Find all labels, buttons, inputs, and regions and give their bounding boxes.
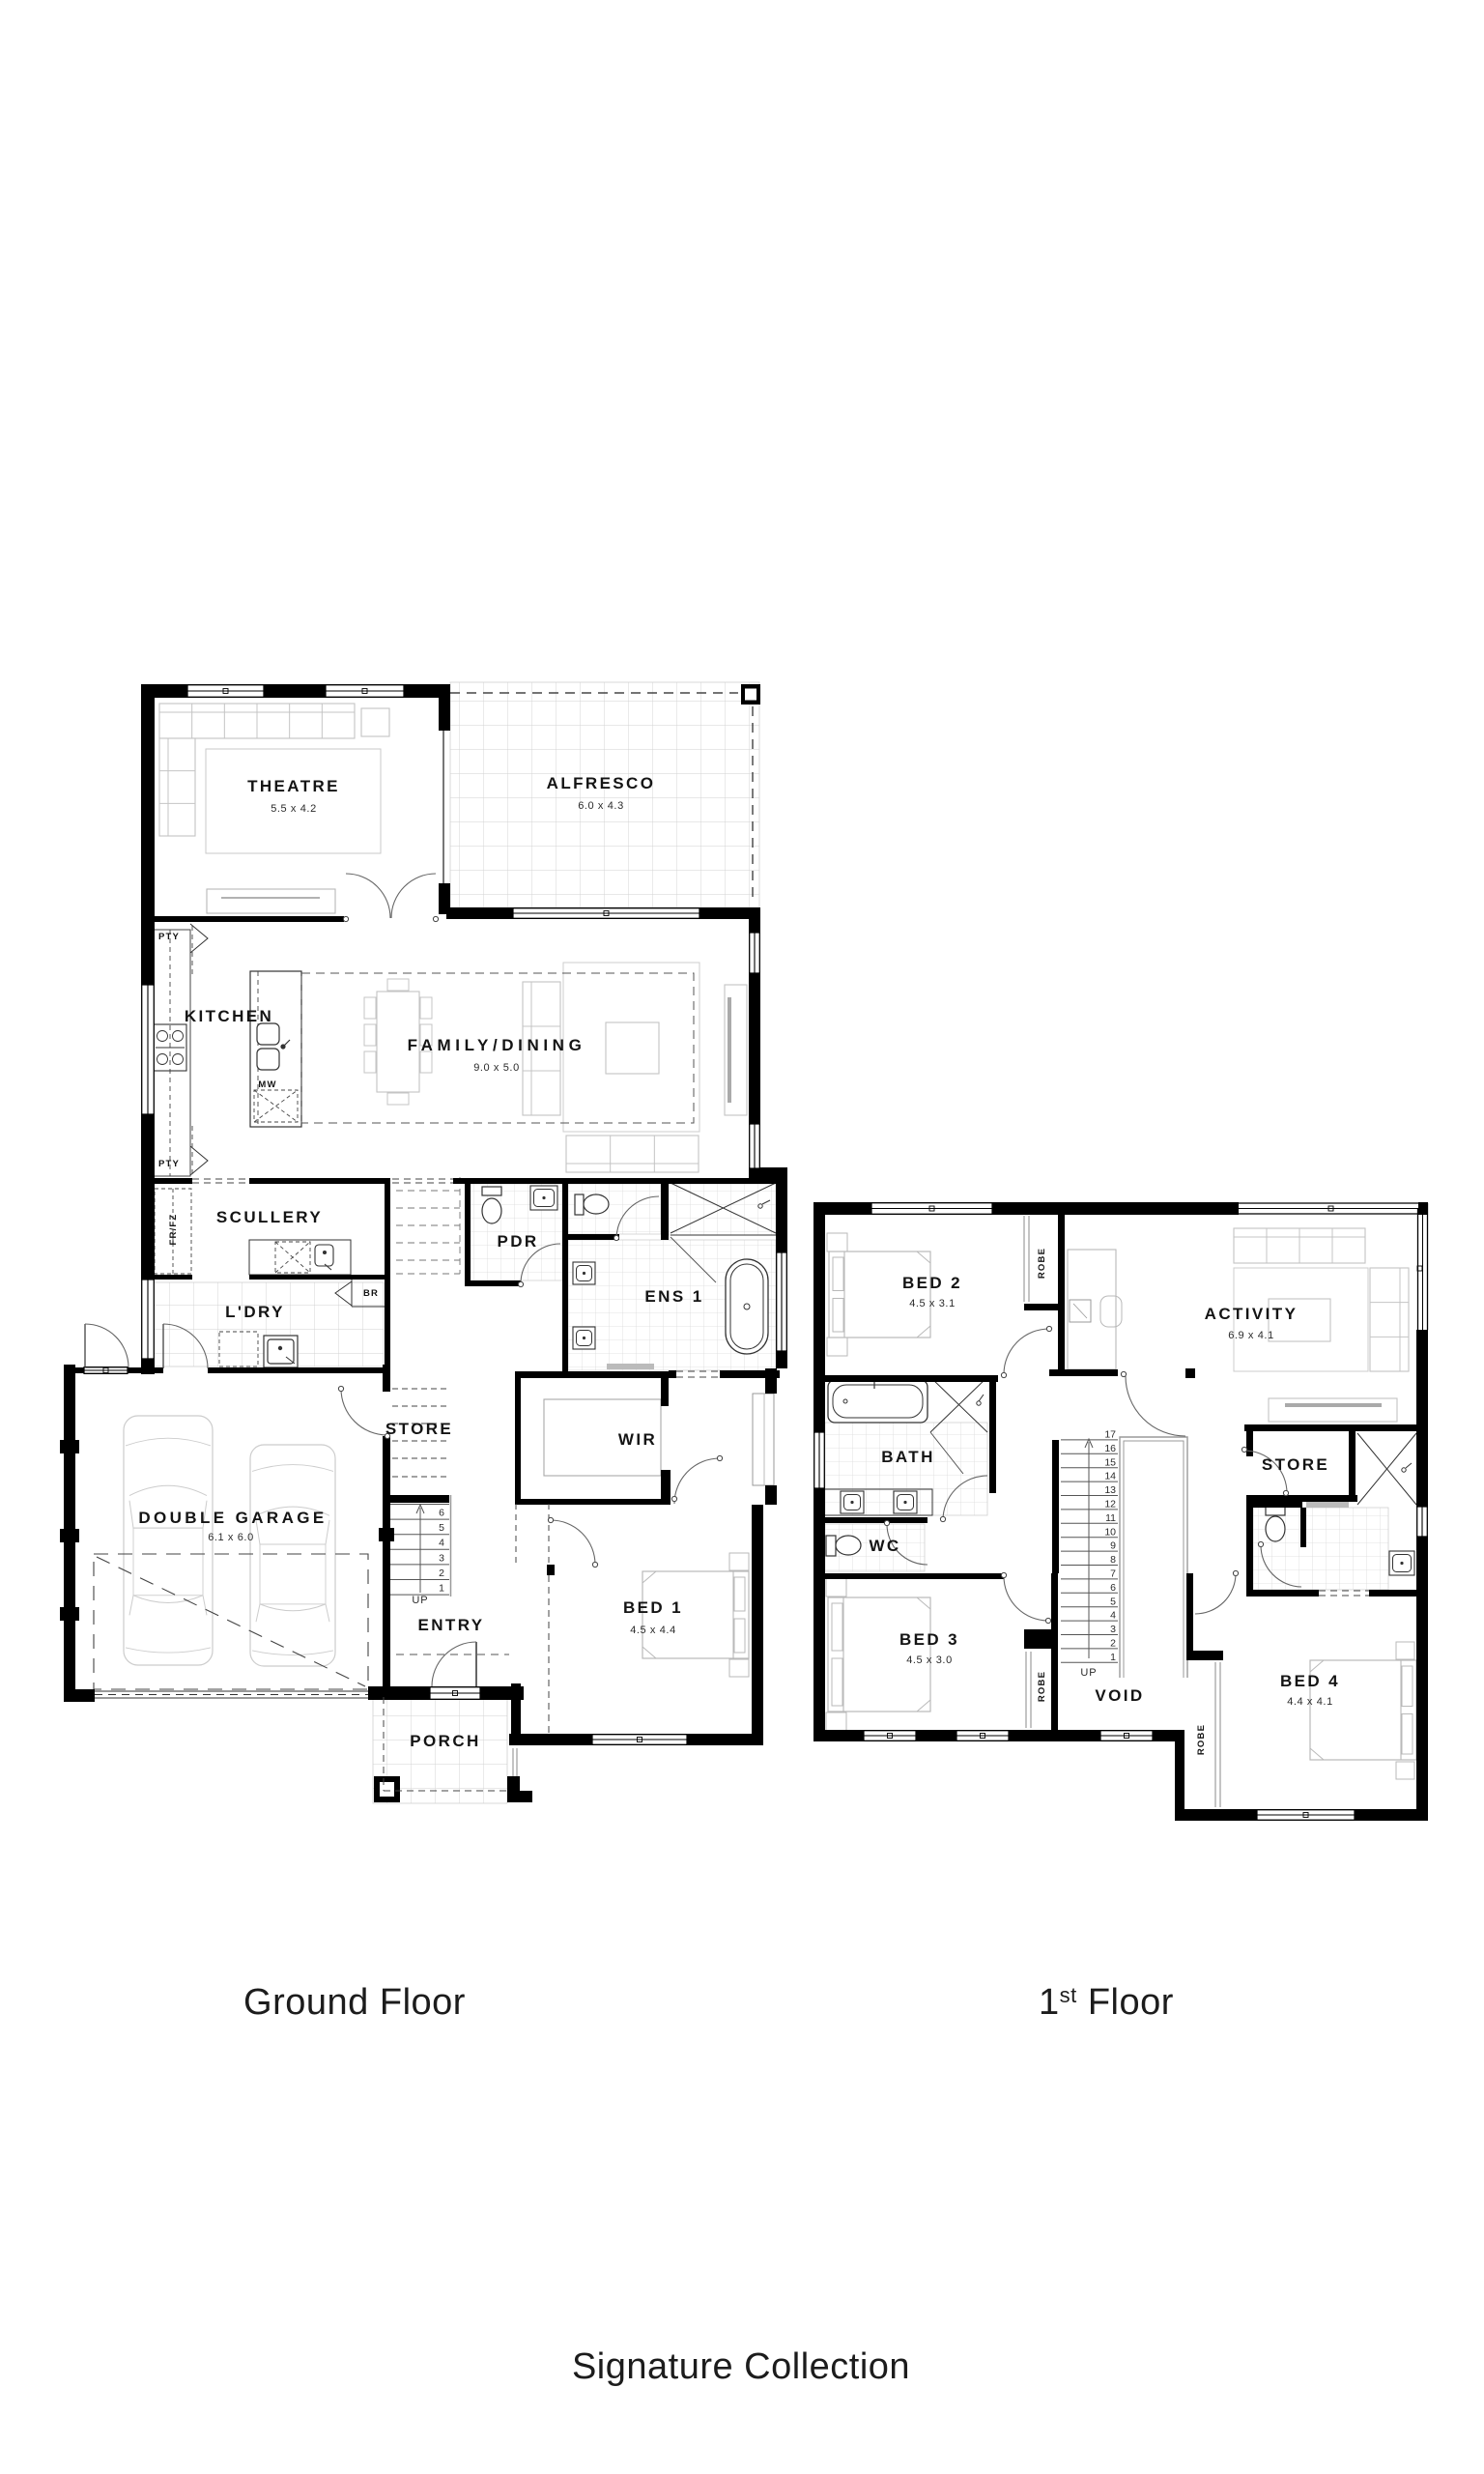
svg-text:3: 3 — [1110, 1624, 1116, 1635]
svg-text:L'DRY: L'DRY — [225, 1303, 285, 1321]
svg-text:PTY: PTY — [158, 1159, 180, 1169]
svg-text:1: 1 — [439, 1583, 444, 1595]
svg-text:PTY: PTY — [158, 932, 180, 942]
svg-text:14: 14 — [1104, 1471, 1116, 1482]
svg-text:5.5 x 4.2: 5.5 x 4.2 — [271, 803, 317, 815]
svg-text:MW: MW — [258, 1079, 276, 1090]
svg-text:THEATRE: THEATRE — [247, 777, 340, 795]
svg-text:PDR: PDR — [497, 1232, 538, 1251]
svg-text:BR: BR — [363, 1288, 379, 1299]
svg-text:Signature Collection: Signature Collection — [572, 2346, 910, 2387]
svg-text:ROBE: ROBE — [1037, 1248, 1047, 1279]
svg-text:UP: UP — [1080, 1667, 1097, 1679]
svg-text:6.0 x 4.3: 6.0 x 4.3 — [578, 800, 624, 812]
svg-text:BED 4: BED 4 — [1280, 1672, 1340, 1690]
svg-text:ROBE: ROBE — [1037, 1671, 1047, 1702]
svg-text:DOUBLE GARAGE: DOUBLE GARAGE — [138, 1509, 327, 1527]
svg-text:STORE: STORE — [1262, 1455, 1329, 1474]
svg-text:BED 2: BED 2 — [902, 1274, 962, 1292]
svg-text:SCULLERY: SCULLERY — [216, 1208, 323, 1226]
svg-text:9.0 x 5.0: 9.0 x 5.0 — [473, 1062, 520, 1074]
svg-text:7: 7 — [1110, 1568, 1116, 1580]
svg-text:STORE: STORE — [385, 1420, 453, 1438]
svg-text:3: 3 — [439, 1552, 444, 1564]
svg-text:4.5 x 3.0: 4.5 x 3.0 — [906, 1654, 953, 1666]
svg-text:5: 5 — [1110, 1596, 1116, 1607]
svg-text:8: 8 — [1110, 1554, 1116, 1566]
svg-text:13: 13 — [1104, 1484, 1116, 1496]
svg-text:16: 16 — [1104, 1443, 1116, 1454]
svg-text:9: 9 — [1110, 1540, 1116, 1552]
svg-text:FR/FZ: FR/FZ — [168, 1214, 179, 1246]
svg-text:UP: UP — [412, 1595, 428, 1606]
svg-text:BED 3: BED 3 — [899, 1630, 959, 1649]
svg-text:6.9 x 4.1: 6.9 x 4.1 — [1228, 1330, 1274, 1341]
svg-text:WC: WC — [869, 1537, 900, 1555]
svg-text:ACTIVITY: ACTIVITY — [1205, 1305, 1298, 1323]
svg-text:KITCHEN: KITCHEN — [185, 1007, 273, 1025]
svg-text:6.1 x 6.0: 6.1 x 6.0 — [208, 1532, 254, 1543]
svg-text:6: 6 — [439, 1508, 444, 1519]
svg-text:2: 2 — [1110, 1638, 1116, 1650]
svg-text:4.4 x 4.1: 4.4 x 4.1 — [1287, 1696, 1333, 1708]
svg-text:BED 1: BED 1 — [623, 1598, 683, 1617]
svg-text:Ground Floor: Ground Floor — [243, 1982, 466, 2023]
svg-text:ALFRESCO: ALFRESCO — [547, 774, 656, 792]
svg-text:PORCH: PORCH — [410, 1732, 480, 1750]
svg-text:ENTRY: ENTRY — [418, 1616, 485, 1634]
svg-text:11: 11 — [1105, 1512, 1116, 1524]
svg-text:1st Floor: 1st Floor — [1039, 1982, 1174, 2023]
svg-text:VOID: VOID — [1095, 1686, 1144, 1705]
svg-text:15: 15 — [1104, 1456, 1116, 1468]
svg-text:2: 2 — [439, 1568, 444, 1579]
svg-text:BATH: BATH — [881, 1448, 935, 1466]
svg-text:10: 10 — [1104, 1526, 1116, 1538]
svg-text:4.5 x 4.4: 4.5 x 4.4 — [630, 1625, 676, 1636]
svg-text:4: 4 — [1110, 1610, 1116, 1622]
svg-text:4: 4 — [439, 1538, 444, 1549]
svg-text:12: 12 — [1104, 1499, 1116, 1510]
svg-text:5: 5 — [439, 1522, 444, 1534]
svg-text:6: 6 — [1110, 1582, 1116, 1594]
svg-text:17: 17 — [1104, 1429, 1116, 1441]
svg-text:ROBE: ROBE — [1196, 1724, 1207, 1755]
svg-text:ENS 1: ENS 1 — [644, 1287, 703, 1306]
svg-text:1: 1 — [1110, 1652, 1116, 1663]
svg-text:WIR: WIR — [618, 1430, 657, 1449]
svg-text:4.5 x 3.1: 4.5 x 3.1 — [909, 1298, 956, 1309]
svg-text:FAMILY/DINING: FAMILY/DINING — [408, 1036, 586, 1054]
